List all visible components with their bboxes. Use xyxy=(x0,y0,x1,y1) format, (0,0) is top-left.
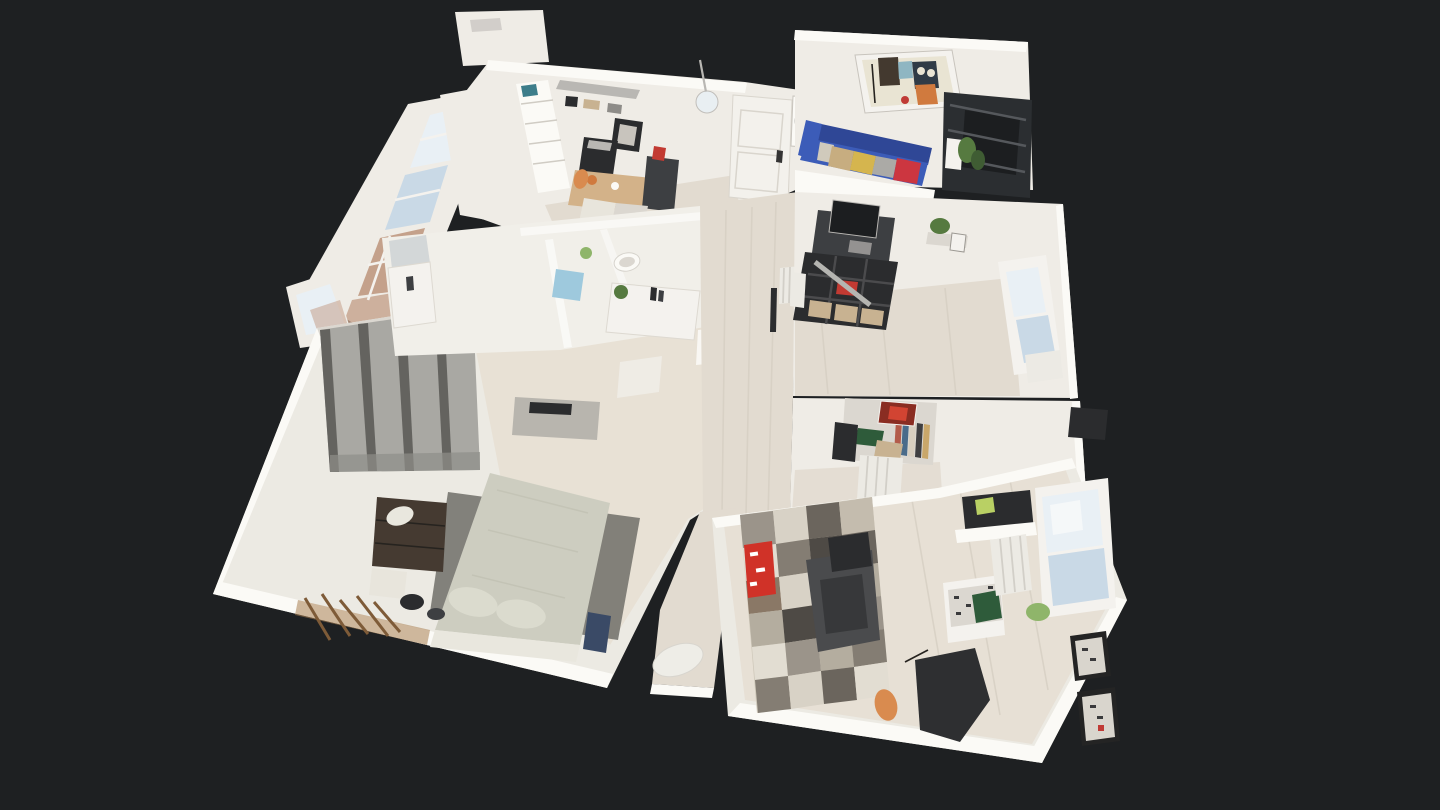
living-room xyxy=(794,30,1033,202)
bedroom2-plant xyxy=(1026,603,1050,621)
clutter-dark-1 xyxy=(400,594,424,610)
dark-opening xyxy=(1068,407,1108,440)
office-radiator xyxy=(1025,350,1063,383)
bedroom2-window-pane-lower xyxy=(1048,548,1109,606)
clutter-white xyxy=(552,647,568,657)
painting-eye-1 xyxy=(917,67,925,75)
toiletry-bottle-1 xyxy=(650,287,657,301)
wall-poster-inner xyxy=(617,124,637,146)
door-handle xyxy=(776,150,783,163)
red-lit-mirror-glow xyxy=(888,406,908,421)
sofa-pillow-gray xyxy=(872,156,897,178)
shelf-basket-3 xyxy=(860,308,884,326)
clutter-dark-2 xyxy=(427,608,445,620)
office-shelf-frame xyxy=(950,233,966,252)
fire-extinguisher xyxy=(652,146,666,161)
lime-green-item xyxy=(975,497,995,515)
ceiling-fragment xyxy=(455,10,549,66)
floor-frame-1-art xyxy=(1075,637,1106,676)
bathroom-plant xyxy=(614,285,628,299)
faucet xyxy=(406,276,414,291)
charcoal-textile-fold xyxy=(820,574,868,634)
ceiling-fragment-shade xyxy=(470,18,502,32)
wall-fragment-1 xyxy=(617,356,662,398)
office-shelf-plant xyxy=(930,218,950,234)
living-plant-leaves-2 xyxy=(971,150,985,170)
painting-orange-figure xyxy=(915,84,938,105)
dollhouse-3d-view[interactable] xyxy=(0,0,1440,810)
painting-teal-patch xyxy=(898,61,913,79)
side-table xyxy=(369,568,407,599)
painting-red-dot xyxy=(901,96,909,104)
hanging-plant xyxy=(580,247,592,259)
office-monitor xyxy=(829,200,880,238)
sink-vanity-left xyxy=(388,262,436,328)
table-dish xyxy=(611,182,619,190)
blue-towel xyxy=(552,269,584,301)
door-edge-sliver xyxy=(770,288,777,332)
blue-duffel-bag xyxy=(583,612,611,653)
kitchen-cart xyxy=(642,156,679,212)
window-building-view xyxy=(1050,500,1083,535)
toiletry-bottle-2 xyxy=(658,290,664,302)
black-bag xyxy=(832,422,858,462)
pendant-lamp xyxy=(696,91,718,113)
shelf-item-dark xyxy=(565,96,578,107)
frame-art-red-mark xyxy=(1098,725,1104,731)
painting-eye-2 xyxy=(927,69,935,77)
fruit-bowl xyxy=(587,175,597,185)
soundbar xyxy=(529,402,572,415)
shelf-basket-1 xyxy=(808,300,832,319)
teal-storage-box xyxy=(521,84,538,97)
shelf-basket-2 xyxy=(834,304,858,323)
viewer-stage[interactable] xyxy=(0,0,1440,810)
office-left-radiator xyxy=(790,272,806,308)
home-office xyxy=(790,192,1078,399)
black-garment xyxy=(828,532,872,572)
painting-face-shape xyxy=(878,57,900,86)
